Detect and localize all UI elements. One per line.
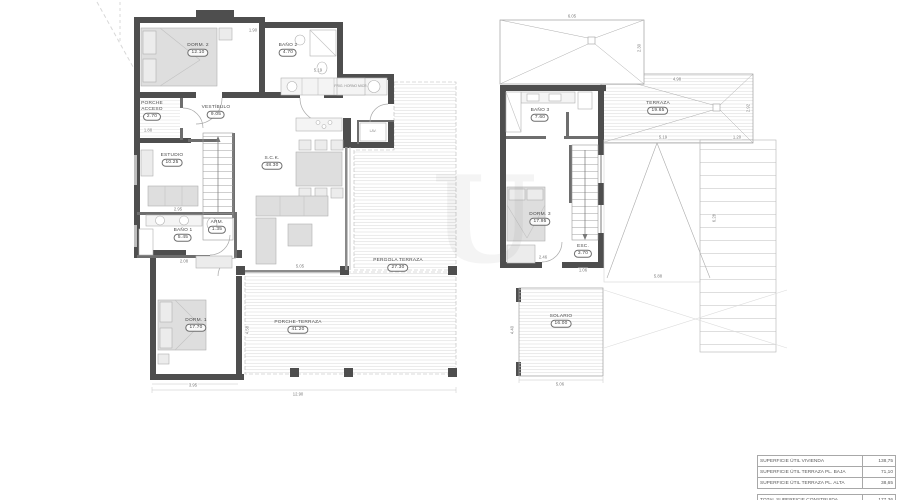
dim-label: 1.20 (732, 135, 742, 140)
dim-label: 2.30 (637, 43, 642, 53)
area-badge: 5.45 (174, 234, 192, 242)
dim-label: 2.92 (746, 103, 751, 113)
dim-label: 5.06 (555, 382, 565, 387)
row-label: TOTAL SUPERFICIE CONSTRUIDA (758, 495, 863, 500)
dim-label: 4.58 (245, 325, 250, 335)
row-value: 71,10 (863, 467, 895, 477)
plot-boundary-lines (97, 2, 137, 74)
area-badge: 17.95 (529, 218, 550, 226)
room-label-dorm2: DORM. 2 12.10 (187, 43, 208, 57)
room-label-arm: ARM. 1.35 (208, 220, 226, 234)
dim-label: 1.06 (578, 268, 588, 273)
room-label-bano3: BAÑO 3 7.60 (531, 108, 550, 122)
dim-label: 2.08 (179, 259, 189, 264)
upper-floor-stairs (572, 145, 598, 240)
dim-label: 1.88 (143, 128, 153, 133)
table-row: SUPERFICIE ÚTIL TERRAZA PL. BAJA 71,10 (757, 467, 896, 478)
row-value: 38,65 (863, 478, 895, 488)
laundry-label: LAV. (370, 129, 377, 133)
dim-label: 5.19 (658, 135, 668, 140)
room-label-sck: S.C.K. 48.30 (261, 156, 282, 170)
logo-watermark: U (432, 150, 537, 291)
dim-label: 4.98 (672, 77, 682, 82)
room-label-esc: ESC. 3.70 (574, 244, 592, 258)
room-label-porche-terraza: PORCHE-TERRAZA 41.20 (274, 320, 321, 334)
upper-floor-plan (500, 20, 787, 383)
room-label-dorm1: DORM. 1 17.70 (185, 318, 206, 332)
room-label-terraza: TERRAZA 19.65 (646, 101, 670, 115)
area-badge: 3.70 (574, 250, 592, 258)
area-badge: 1.35 (208, 226, 226, 234)
area-badge: 2.70 (143, 113, 161, 121)
table-total-row: TOTAL SUPERFICIE CONSTRUIDA 177,36 (757, 494, 896, 500)
dim-label: 12.90 (292, 392, 304, 397)
double-height-roof-lines (604, 140, 710, 282)
kitchen-appliances-label: FRIG. HORNO MICR. (334, 84, 367, 88)
row-label: SUPERFICIE ÚTIL TERRAZA PL. BAJA (758, 467, 863, 477)
dim-label: 5.19 (313, 68, 323, 73)
room-label-bano2: BAÑO 2 4.70 (279, 43, 298, 57)
ground-floor-plan (97, 2, 457, 393)
area-badge: 17.70 (185, 324, 206, 332)
floorplan-sheet: U PORCHE ACCESO 2.70 DORM. 2 12.10 BAÑO … (0, 0, 900, 500)
area-badge: 10.25 (161, 159, 182, 167)
area-badge: 41.20 (287, 326, 308, 334)
dim-label: 1.90 (248, 28, 258, 33)
area-badge: 48.30 (261, 162, 282, 170)
dim-label: 6.05 (567, 14, 577, 19)
area-badge: 16.00 (550, 320, 571, 328)
dim-label: 3.95 (188, 383, 198, 388)
row-label: SUPERFICIE ÚTIL TERRAZA PL. ALTA (758, 478, 863, 488)
area-badge: 7.60 (531, 114, 549, 122)
exterior-stair-strip (700, 140, 776, 352)
area-badge: 27.30 (387, 264, 408, 272)
dim-label: 2.46 (538, 255, 548, 260)
dim-label: 4.40 (510, 325, 515, 335)
row-label: SUPERFICIE ÚTIL VIVIENDA (758, 456, 863, 466)
room-label-dorm3: DORM. 3 17.95 (529, 212, 550, 226)
dim-label: 2.95 (173, 207, 183, 212)
area-badge: 19.65 (647, 107, 668, 115)
row-value: 177,36 (863, 495, 895, 500)
area-badge: 4.70 (279, 49, 297, 57)
room-label-solario: SOLARIO 16.00 (550, 314, 573, 328)
room-label-bano1: BAÑO 1 5.45 (174, 228, 193, 242)
area-badge: 9.05 (207, 111, 225, 119)
dim-label: 5.88 (653, 274, 663, 279)
solario-deck (519, 288, 603, 376)
summary-table: SUPERFICIE ÚTIL VIVIENDA 138,75 SUPERFIC… (757, 455, 896, 500)
room-label-vestibulo: VESTÍBULO 9.05 (202, 105, 231, 119)
dim-label: 5.05 (295, 264, 305, 269)
room-label-porche-acceso: PORCHE ACCESO 2.70 (139, 101, 165, 121)
dim-label: 6.28 (712, 213, 717, 223)
room-label-pergola-terraza: PERGOLA TERRAZA 27.30 (373, 258, 423, 272)
row-value: 138,75 (863, 456, 895, 466)
area-badge: 12.10 (187, 49, 208, 57)
roof-outline (500, 20, 644, 84)
table-row: SUPERFICIE ÚTIL VIVIENDA 138,75 (757, 455, 896, 467)
room-label-estudio: ESTUDIO 10.25 (161, 153, 184, 167)
table-row: SUPERFICIE ÚTIL TERRAZA PL. ALTA 38,65 (757, 478, 896, 489)
